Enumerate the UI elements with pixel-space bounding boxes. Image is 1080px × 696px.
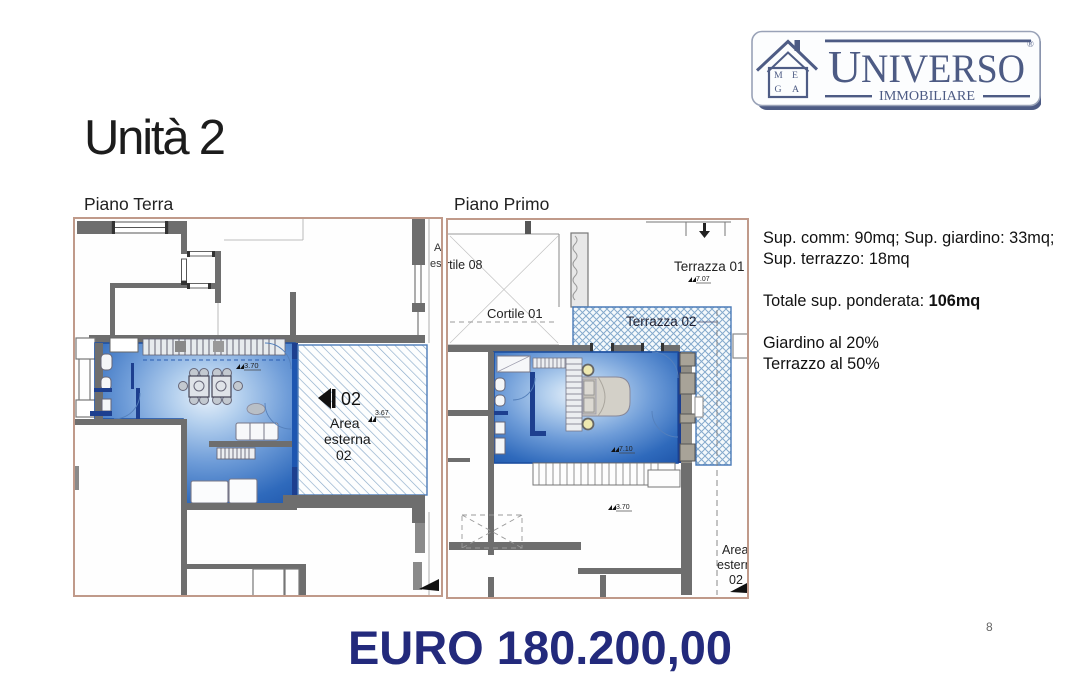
svg-text:es: es xyxy=(430,258,442,270)
svg-text:Area: Area xyxy=(330,415,360,431)
svg-text:esterna: esterna xyxy=(324,431,371,447)
svg-text:E: E xyxy=(792,70,798,81)
svg-text:02: 02 xyxy=(336,447,352,463)
svg-text:NIVERSO: NIVERSO xyxy=(861,46,1025,91)
svg-text:7.07: 7.07 xyxy=(696,276,710,283)
svg-text:Terrazza 02: Terrazza 02 xyxy=(626,314,697,329)
svg-text:Terrazza 01: Terrazza 01 xyxy=(674,259,745,274)
svg-text:IMMOBILIARE: IMMOBILIARE xyxy=(879,88,975,103)
svg-text:02: 02 xyxy=(341,389,361,409)
svg-text:3.70: 3.70 xyxy=(244,361,259,370)
svg-text:3.67: 3.67 xyxy=(375,410,389,417)
svg-text:A: A xyxy=(792,84,799,95)
svg-text:Cortile 01: Cortile 01 xyxy=(487,306,543,321)
svg-text:02: 02 xyxy=(729,573,743,587)
svg-text:Cortile 08: Cortile 08 xyxy=(446,258,483,272)
svg-text:3.70: 3.70 xyxy=(616,504,630,511)
svg-text:G: G xyxy=(775,84,782,95)
svg-text:®: ® xyxy=(1027,39,1034,49)
svg-text:7.10: 7.10 xyxy=(619,446,633,453)
svg-text:U: U xyxy=(828,41,861,92)
svg-text:Area: Area xyxy=(722,543,748,557)
svg-text:esterna: esterna xyxy=(717,558,749,572)
svg-text:M: M xyxy=(774,70,783,81)
